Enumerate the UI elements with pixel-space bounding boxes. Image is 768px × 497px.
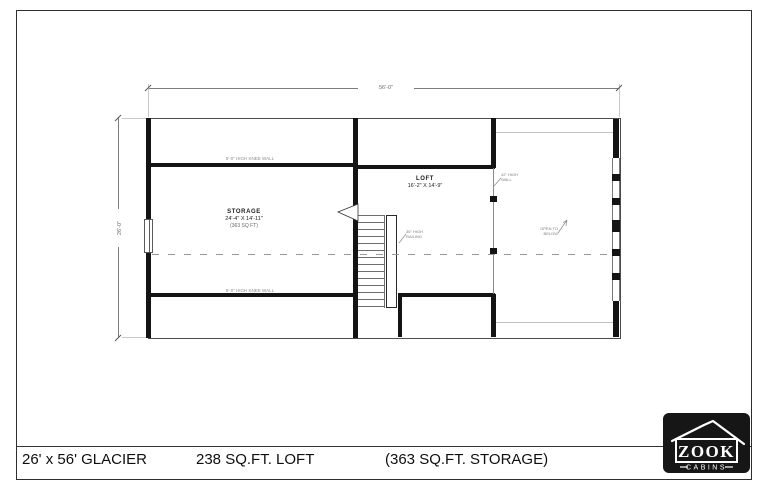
extension-line-left-top xyxy=(122,118,148,119)
storage-area-title: (363 SQ.FT. STORAGE) xyxy=(385,451,548,468)
exterior-wall-right-upper xyxy=(613,119,619,158)
extension-line-left-bottom xyxy=(122,337,148,338)
storage-room-area: (363 SQ FT) xyxy=(194,223,294,229)
gable-window-post-2 xyxy=(612,198,620,205)
storage-room-label: STORAGE 24'-4" X 14'-11" (363 SQ FT) xyxy=(194,209,294,229)
floor-plan-sheet: 56'-0" 26'-0" xyxy=(0,0,768,497)
logo-roof-icon xyxy=(672,421,744,444)
storage-room-size: 24'-4" X 14'-11" xyxy=(194,216,294,222)
title-block-rule xyxy=(16,446,751,447)
loft-east-post-1 xyxy=(490,196,497,202)
logo-brand-text: ZOOK xyxy=(678,442,735,461)
open-below-annotation: OPEN TO BELOW xyxy=(536,226,558,236)
loft-area-title: 238 SQ.FT. LOFT xyxy=(196,451,314,468)
loft-room-name: LOFT xyxy=(385,176,465,182)
gable-window-post-4 xyxy=(612,249,620,256)
dimension-label-width: 56'-0" xyxy=(358,83,414,93)
railing-annotation-line2: RAILING xyxy=(406,234,446,239)
staircase-treads xyxy=(358,215,384,308)
extension-line-top-left xyxy=(148,84,149,117)
loft-east-wall-upper xyxy=(491,118,496,168)
loft-room-label: LOFT 16'-2" X 14'-9" xyxy=(385,176,465,189)
loft-east-wall-lower xyxy=(491,294,496,337)
stair-railing xyxy=(386,215,397,308)
knee-wall-south xyxy=(148,293,357,297)
staircase-edge-line xyxy=(384,215,385,308)
gable-window-post-3 xyxy=(612,220,620,232)
zook-logo-graphic: ZOOK CABINS xyxy=(663,413,750,473)
loft-wall-annotation-line2: WALL xyxy=(501,177,541,182)
storage-room-name: STORAGE xyxy=(194,209,294,215)
extension-line-top-right xyxy=(619,84,620,117)
loft-room-size: 16'-2" X 14'-9" xyxy=(385,183,465,189)
underloft-room-west-wall xyxy=(398,293,402,337)
open-below-annotation-line2: BELOW xyxy=(536,231,558,236)
gable-window-post-5 xyxy=(612,273,620,280)
zook-cabins-logo: ZOOK CABINS xyxy=(663,413,750,473)
ridge-dashed-line xyxy=(152,254,612,255)
ceiling-break-line-bottom-right xyxy=(496,322,613,323)
logo-sub-text: CABINS xyxy=(686,465,727,472)
knee-wall-note-bottom: 5'-0" HIGH KNEE WALL xyxy=(200,288,300,293)
ceiling-break-line-top-right xyxy=(496,132,613,133)
loft-north-wall xyxy=(355,165,495,169)
window-left-mullion xyxy=(149,220,150,252)
railing-annotation: 36" HIGH RAILING xyxy=(406,229,446,239)
underloft-room-north-wall xyxy=(398,293,495,297)
loft-east-low-wall-line xyxy=(493,168,494,294)
knee-wall-north xyxy=(148,163,357,167)
gable-window-post-1 xyxy=(612,174,620,181)
dimension-label-height: 26'-0" xyxy=(110,209,130,247)
window-left xyxy=(144,219,153,253)
exterior-wall-left-upper xyxy=(146,118,151,220)
knee-wall-note-top: 5'-0" HIGH KNEE WALL xyxy=(200,156,300,161)
model-title: 26' x 56' GLACIER xyxy=(22,451,147,468)
exterior-wall-right-lower xyxy=(613,301,619,337)
loft-wall-annotation: 42" HIGH WALL xyxy=(501,172,541,182)
